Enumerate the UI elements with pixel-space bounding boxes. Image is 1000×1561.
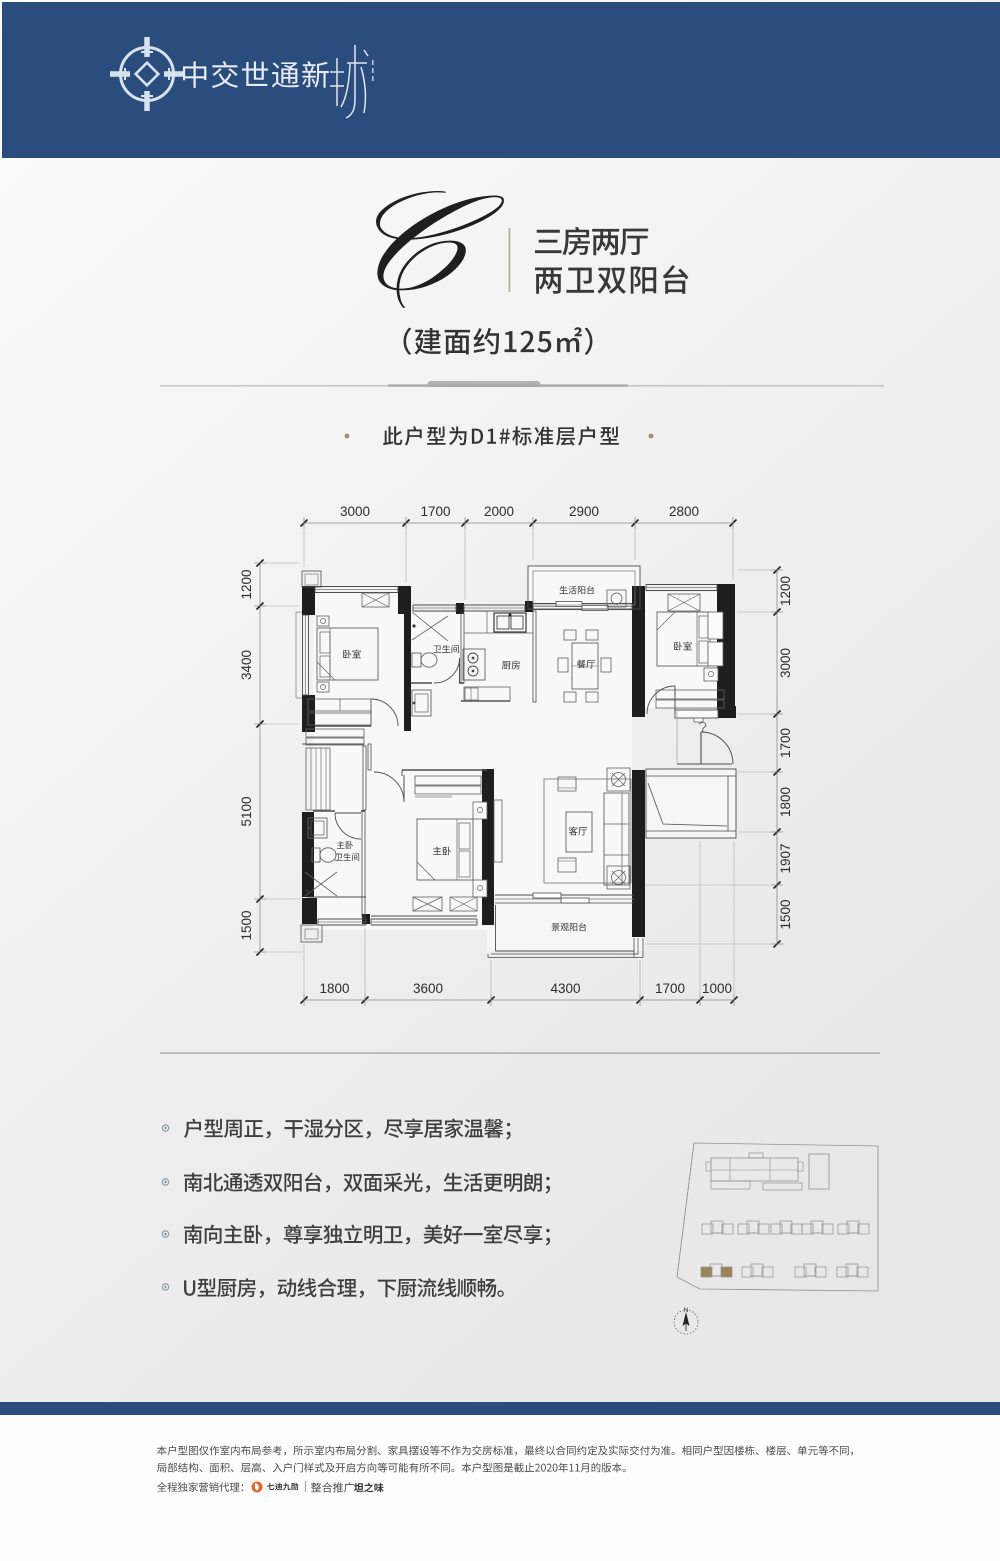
svg-text:1800: 1800 [778, 787, 793, 817]
svg-text:1907: 1907 [778, 843, 793, 873]
svg-text:3400: 3400 [239, 650, 254, 680]
svg-text:N: N [684, 1307, 689, 1314]
svg-text:2900: 2900 [569, 504, 599, 519]
svg-text:4300: 4300 [550, 981, 580, 996]
svg-text:2800: 2800 [669, 504, 699, 519]
svg-text:1000: 1000 [702, 981, 732, 996]
svg-text:1700: 1700 [420, 504, 450, 519]
svg-text:1200: 1200 [778, 576, 793, 606]
svg-text:3000: 3000 [340, 504, 370, 519]
svg-text:5100: 5100 [239, 796, 254, 826]
svg-text:3600: 3600 [413, 981, 443, 996]
svg-text:1500: 1500 [239, 910, 254, 940]
svg-text:3000: 3000 [778, 648, 793, 678]
svg-text:1200: 1200 [239, 569, 254, 599]
svg-text:1700: 1700 [655, 981, 685, 996]
svg-text:1800: 1800 [319, 981, 349, 996]
svg-text:1500: 1500 [778, 899, 793, 929]
svg-text:2000: 2000 [484, 504, 514, 519]
svg-text:1700: 1700 [778, 728, 793, 758]
